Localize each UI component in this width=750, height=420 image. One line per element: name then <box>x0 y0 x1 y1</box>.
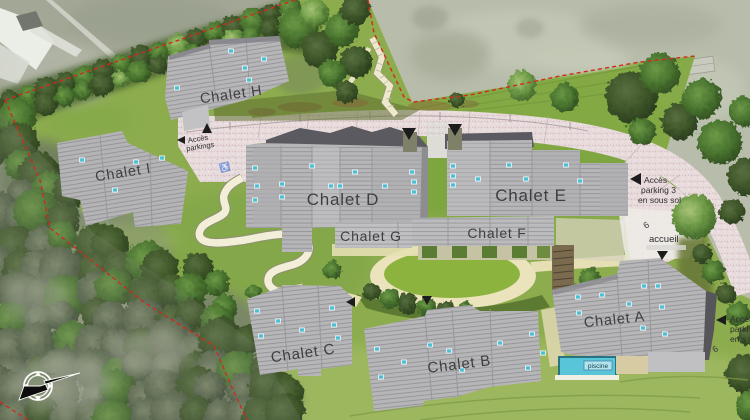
svg-text:accueil: accueil <box>649 234 679 245</box>
svg-text:Chalet D: Chalet D <box>307 190 380 209</box>
svg-text:en s: en s <box>730 334 746 344</box>
svg-text:Accès: Accès <box>644 175 667 185</box>
svg-text:parking 3: parking 3 <box>641 185 676 195</box>
svg-text:piscine: piscine <box>588 363 609 370</box>
svg-text:Chalet E: Chalet E <box>495 186 567 205</box>
svg-text:Chalet G: Chalet G <box>340 228 402 244</box>
svg-text:Accè: Accè <box>730 314 749 324</box>
svg-text:en sous sol: en sous sol <box>638 195 681 205</box>
svg-text:Chalet F: Chalet F <box>467 225 526 241</box>
svg-text:parki: parki <box>730 324 749 334</box>
